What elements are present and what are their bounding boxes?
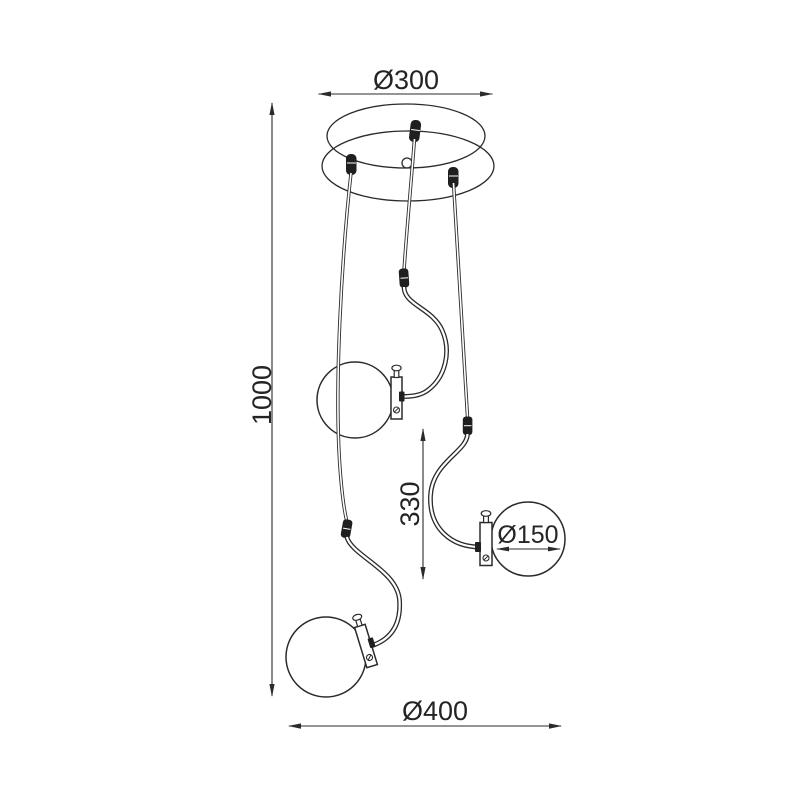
cable-right-core: [454, 183, 468, 417]
pendant-lamp-dimension-drawing: Ø300 1000 330 Ø150 Ø400: [0, 0, 800, 800]
knob-cap-icon: [481, 511, 491, 517]
dim-150-label: Ø150: [497, 521, 558, 549]
arrow-down-icon: [420, 567, 425, 580]
dim-1000-label: 1000: [247, 365, 277, 425]
lamp-holder-right: [475, 511, 492, 566]
arrow-right-icon: [480, 91, 493, 96]
canopy-hook-icon: [402, 158, 412, 168]
curved-arms: [347, 287, 480, 646]
cable-connector-bottom-left-icon: [340, 519, 353, 539]
arrow-left-icon: [318, 91, 331, 96]
drawing-canvas: Ø300 1000 330 Ø150 Ø400: [0, 0, 800, 800]
dim-400-label: Ø400: [402, 696, 468, 726]
knob-cap-icon: [392, 365, 401, 371]
cable-connector-right-icon: [463, 417, 473, 436]
dim-330-label: 330: [395, 481, 425, 526]
globe-bottom-left: [286, 617, 366, 697]
dimension-overall-width: Ø400: [288, 696, 562, 729]
dimension-arm-section-height: 330: [395, 428, 426, 580]
cable-connector-middle-icon: [399, 268, 410, 288]
arrow-up-icon: [420, 428, 425, 441]
arm-right: [430, 434, 480, 547]
arrow-right-icon: [549, 723, 562, 728]
arrow-up-icon: [269, 102, 274, 115]
arm-middle: [402, 287, 447, 397]
dimension-globe-diameter: Ø150: [496, 521, 561, 551]
arrow-left-icon: [288, 723, 301, 728]
arm-socket-icon: [475, 542, 481, 552]
globe-middle: [317, 362, 393, 438]
arrow-down-icon: [269, 684, 274, 697]
cord-grip-left-icon: [346, 154, 357, 175]
ceiling-canopy: [322, 104, 494, 201]
arm-socket-icon: [399, 392, 405, 402]
dim-300-label: Ø300: [373, 65, 439, 95]
lamp-holder-middle: [391, 365, 405, 419]
lamp-holder-bottom-left: [351, 612, 381, 668]
dimension-overall-height: 1000: [247, 102, 277, 697]
dimension-canopy-diameter: Ø300: [318, 65, 493, 97]
